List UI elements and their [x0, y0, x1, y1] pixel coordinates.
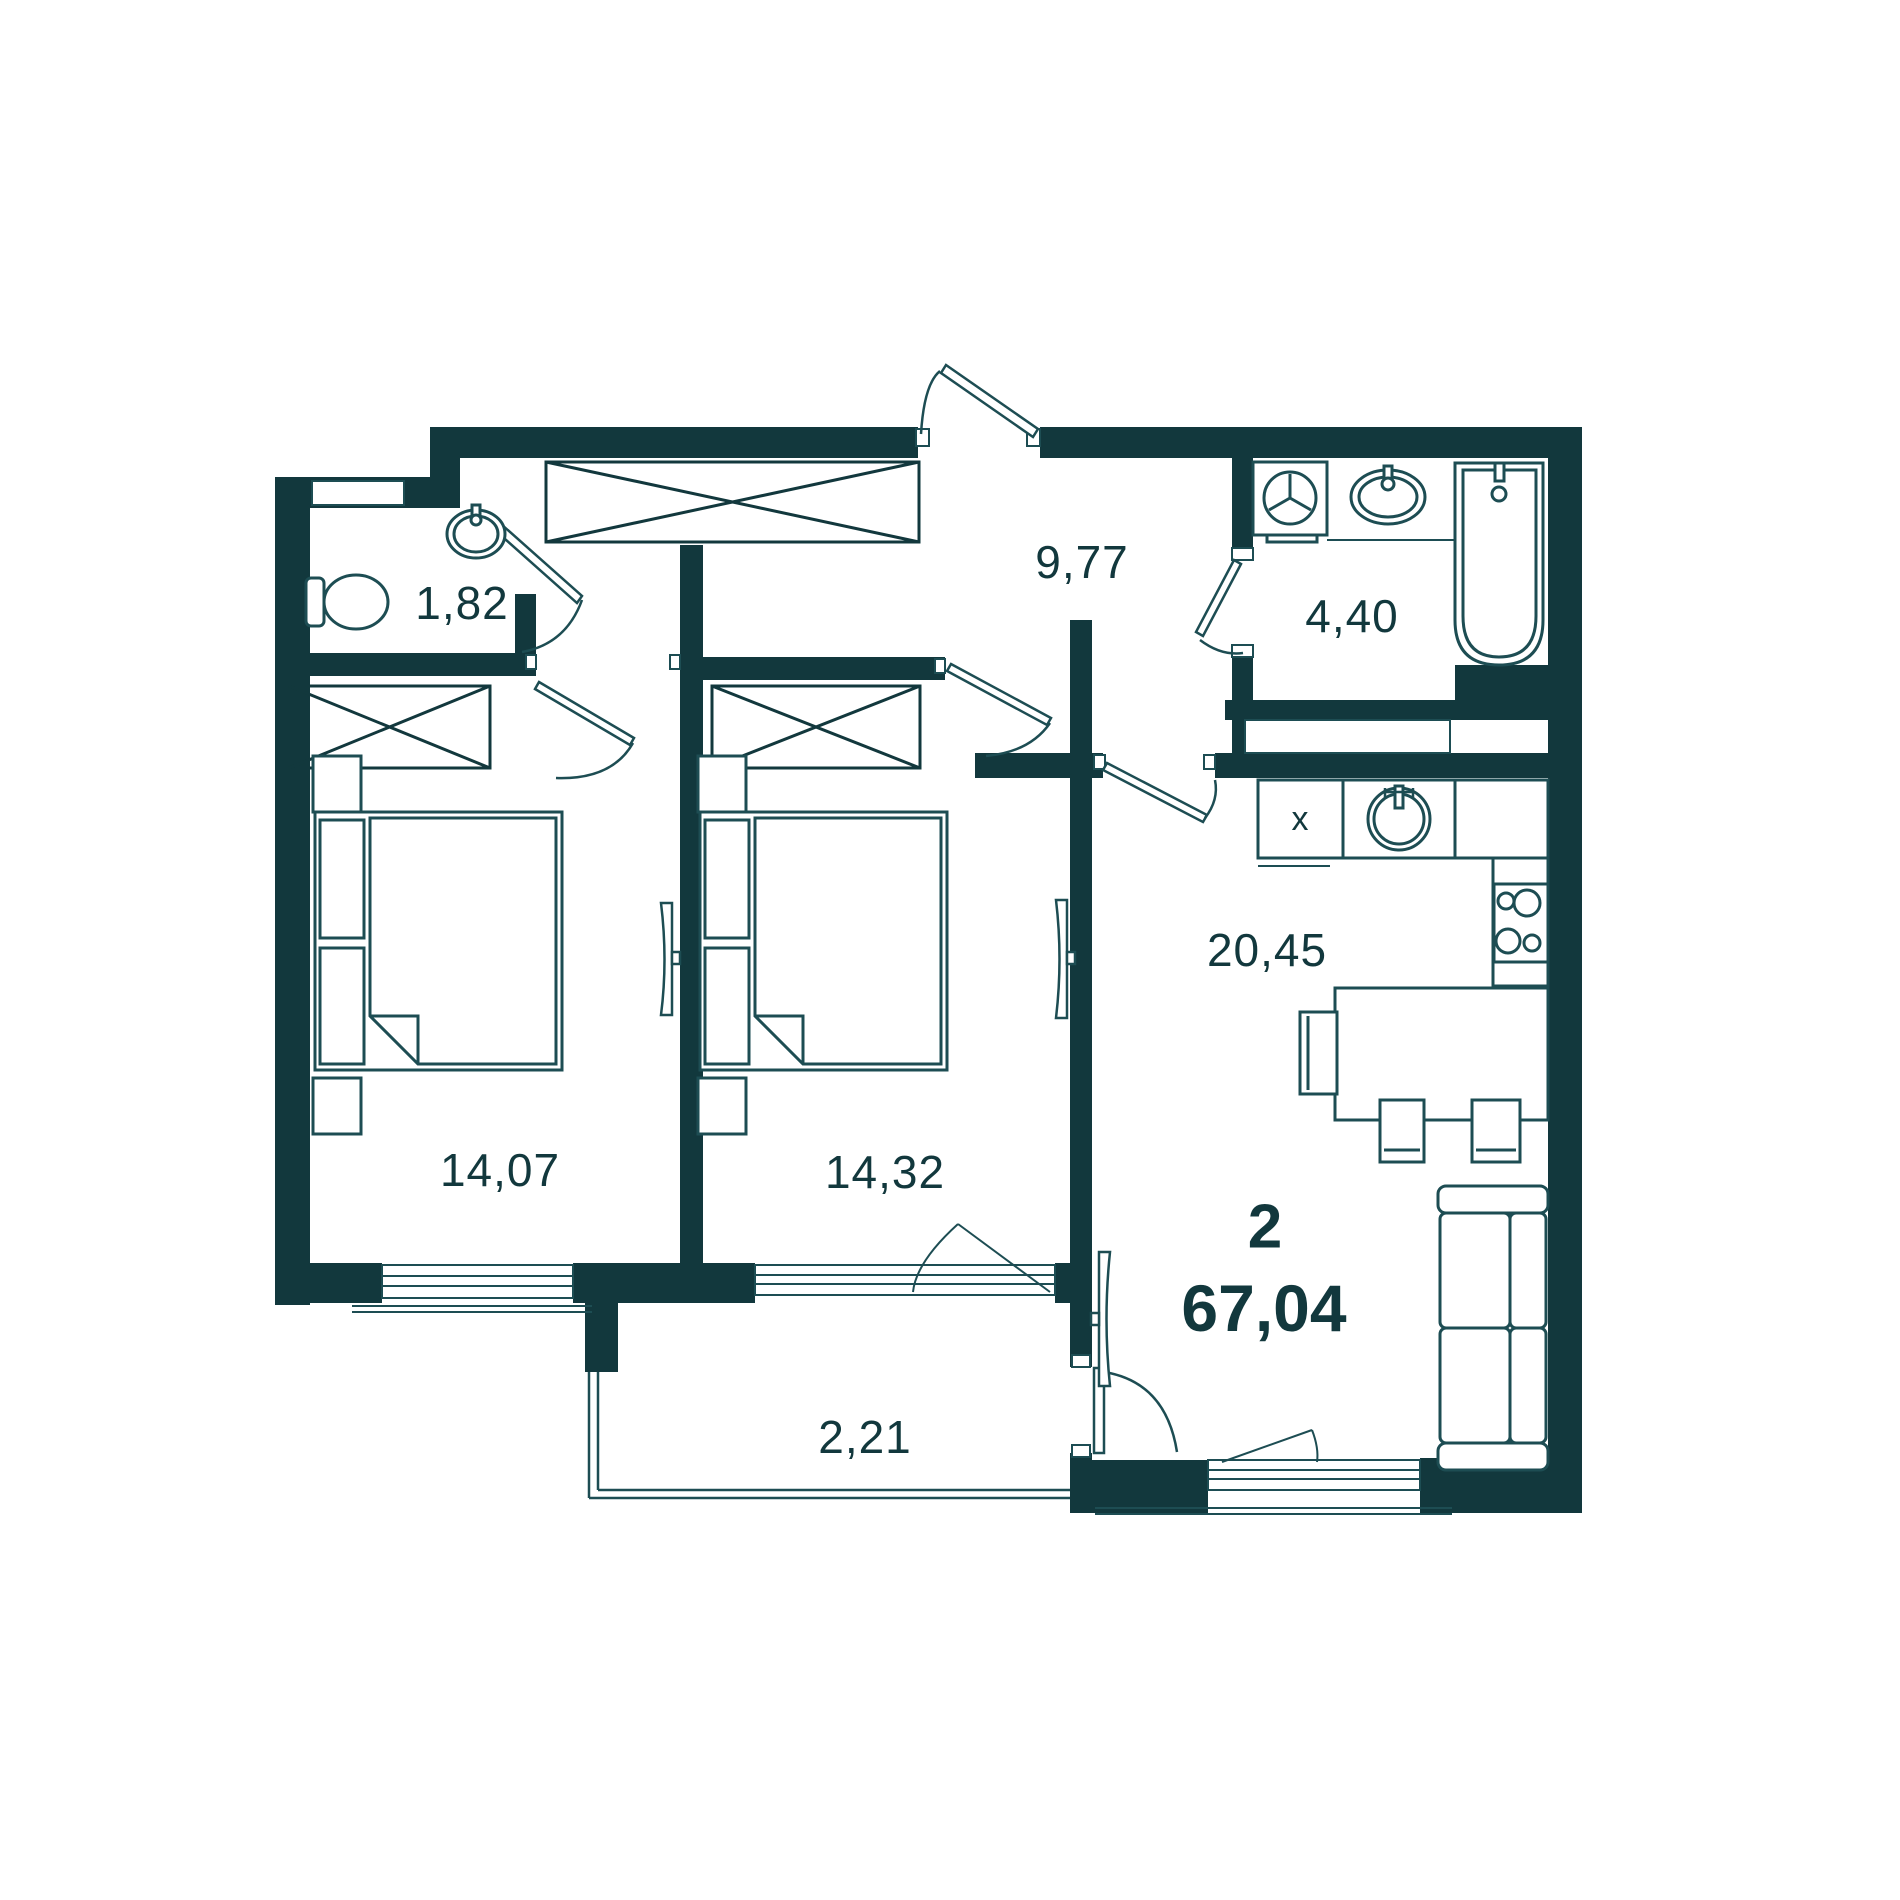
label-hallway-area: 9,77	[1035, 535, 1129, 589]
kitchen-tv	[1091, 1252, 1110, 1386]
nightstand	[313, 756, 361, 812]
toilet	[306, 575, 388, 629]
dining-table	[1300, 988, 1548, 1162]
windows	[352, 1224, 1452, 1514]
bathroom-door	[1196, 560, 1243, 653]
bathtub	[1455, 463, 1543, 665]
kitchen-cabinet-mark: x	[1292, 800, 1309, 838]
entrance-door	[921, 365, 1038, 437]
label-bathroom-area: 4,40	[1305, 589, 1399, 643]
chair	[1300, 1012, 1337, 1094]
label-bedroom1-area: 14,07	[440, 1143, 560, 1197]
nightstand	[313, 1078, 361, 1134]
bedroom2-furniture	[698, 756, 947, 1134]
pillow	[320, 948, 364, 1064]
label-bedroom2-area: 14,32	[825, 1145, 945, 1199]
chair	[1472, 1100, 1520, 1162]
bedroom2-balcony-window	[755, 1224, 1055, 1295]
kitchen-door	[1103, 763, 1216, 822]
hallway-wardrobe	[546, 462, 919, 542]
bedroom1-window	[352, 1265, 592, 1312]
bed-1	[315, 812, 562, 1070]
kitchen-fixtures	[1258, 780, 1548, 1470]
wc-sink	[447, 505, 505, 558]
bed-2	[700, 812, 947, 1070]
bedroom2-door	[947, 664, 1051, 756]
label-kitchen-area: 20,45	[1207, 923, 1327, 977]
stove	[1494, 884, 1548, 962]
floor-plan-stage: x 1,82 9,77 4,40 14,07 14,32 20,45 2,21 …	[0, 0, 1900, 1900]
pillow	[320, 820, 364, 938]
pillow	[705, 948, 749, 1064]
chair	[1380, 1100, 1424, 1162]
washing-machine	[1253, 462, 1327, 542]
nightstand	[698, 1078, 746, 1134]
summary-total-area: 67,04	[1181, 1270, 1346, 1346]
bedroom1-door	[535, 682, 634, 778]
label-wc-area: 1,82	[415, 576, 509, 630]
wc-shaft	[312, 481, 404, 505]
bedroom1-furniture	[313, 756, 562, 1134]
bathroom-shaft	[1245, 720, 1450, 753]
label-balcony-area: 2,21	[818, 1410, 912, 1464]
kitchen-sink	[1368, 786, 1430, 850]
floor-plan-drawing: x	[0, 0, 1900, 1900]
summary-rooms-count: 2	[1248, 1192, 1282, 1263]
bedroom1-tv	[661, 903, 680, 1015]
sofa	[1438, 1186, 1548, 1470]
pillow	[705, 820, 749, 938]
nightstand	[698, 756, 746, 812]
bathroom-sink	[1327, 466, 1455, 540]
